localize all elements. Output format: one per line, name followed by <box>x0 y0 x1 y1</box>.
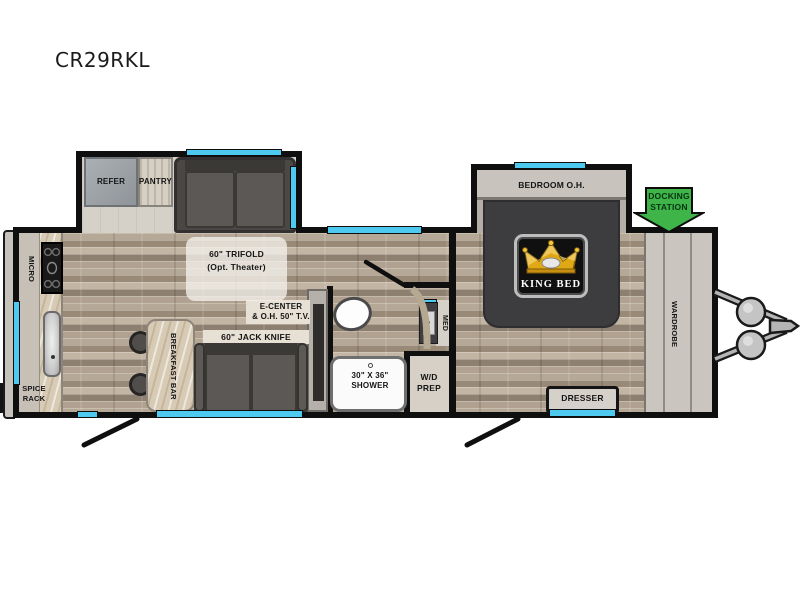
king-bed-logo: KING BED <box>514 234 588 298</box>
pantry-label: PANTRY <box>134 177 177 187</box>
propane-tanks-icon <box>737 298 765 359</box>
shower-label-line2: SHOWER <box>330 381 410 391</box>
bedroom-top-window <box>514 162 586 169</box>
wd-prep-label: W/D PREP <box>408 372 450 394</box>
front-wall <box>712 227 718 418</box>
docking-label-line1: DOCKING <box>633 191 705 202</box>
bottom-window-small <box>77 411 98 418</box>
cooktop-burners-icon <box>43 244 61 292</box>
trifold-label-line1: 60" TRIFOLD <box>186 248 287 261</box>
vanity-accent <box>422 299 437 303</box>
faucet-icon <box>51 355 55 359</box>
spice-rack-label-line2: RACK <box>10 394 58 404</box>
bottom-window-long <box>156 410 303 418</box>
docking-label-line2: STATION <box>633 202 705 213</box>
bath-door-wall <box>404 282 450 288</box>
micro-label: MICRO <box>22 243 36 295</box>
jack-knife-sofa <box>194 343 308 412</box>
king-bed-label: KING BED <box>517 279 585 290</box>
sofa-armrest <box>194 343 205 412</box>
floorplan-canvas: CR29RKL BEDROOM O.H. <box>0 0 800 600</box>
wardrobe-label: WARDROBE <box>665 278 679 370</box>
sofa-seat-cushion <box>205 353 251 412</box>
breakfast-bar-label: BREAKFAST BAR <box>163 326 178 406</box>
sofa-armrest <box>297 343 308 412</box>
ecenter-label: E-CENTER & O.H. 50" T.V. <box>232 302 330 323</box>
top-wall <box>13 227 82 233</box>
sofa-seat-cushion <box>235 171 285 228</box>
trifold-label-line2: (Opt. Theater) <box>186 261 287 274</box>
dresser-label: DRESSER <box>546 393 619 404</box>
sofa-back-cushion <box>205 343 297 353</box>
sofa-back-cushion <box>185 160 285 171</box>
hitch-frame <box>715 292 798 359</box>
rear-wall-window <box>13 301 20 385</box>
shower-label: 30" X 36" SHOWER <box>330 371 410 392</box>
trifold-label: 60" TRIFOLD (Opt. Theater) <box>186 248 287 274</box>
sofa-seat-cushion <box>251 353 297 412</box>
spice-rack-label-line1: SPICE <box>10 384 58 394</box>
kitchen-sink <box>43 311 61 377</box>
model-title: CR29RKL <box>55 48 235 72</box>
wd-top-wall <box>404 351 449 356</box>
hitch-coupler-icon <box>770 320 798 333</box>
wardrobe-divider <box>690 233 692 412</box>
shower-label-line1: 30" X 36" <box>330 371 410 381</box>
docking-station-label: DOCKING STATION <box>633 191 705 212</box>
crown-icon <box>517 239 585 277</box>
top-wall-window <box>327 226 422 234</box>
med-label: MED <box>437 304 449 342</box>
trifold-sofa <box>174 157 296 233</box>
faucet-icon <box>427 321 430 324</box>
bedroom-divider-wall <box>449 233 456 412</box>
jack-knife-label: 60" JACK KNIFE <box>203 332 309 343</box>
refer-label: REFER <box>84 177 138 187</box>
entry-door-bedroom <box>467 419 518 445</box>
bath-vanity <box>419 302 438 344</box>
docking-station-arrow: DOCKING STATION <box>633 187 705 233</box>
wd-prep-label-line1: W/D <box>408 372 450 383</box>
cooktop <box>41 242 63 294</box>
sofa-seat-cushion <box>185 171 235 228</box>
dresser-window <box>549 409 616 417</box>
ecenter-label-line2: & O.H. 50" T.V. <box>232 312 330 322</box>
slide-side-window <box>290 166 297 229</box>
shower-drain-icon <box>368 363 373 368</box>
ecenter-label-line1: E-CENTER <box>232 302 330 312</box>
wd-prep-label-line2: PREP <box>408 383 450 394</box>
entry-door-main <box>84 419 137 445</box>
spice-rack-label: SPICE RACK <box>10 384 58 404</box>
slide-top-window <box>186 149 282 156</box>
bedroom-oh-label: BEDROOM O.H. <box>477 180 626 191</box>
